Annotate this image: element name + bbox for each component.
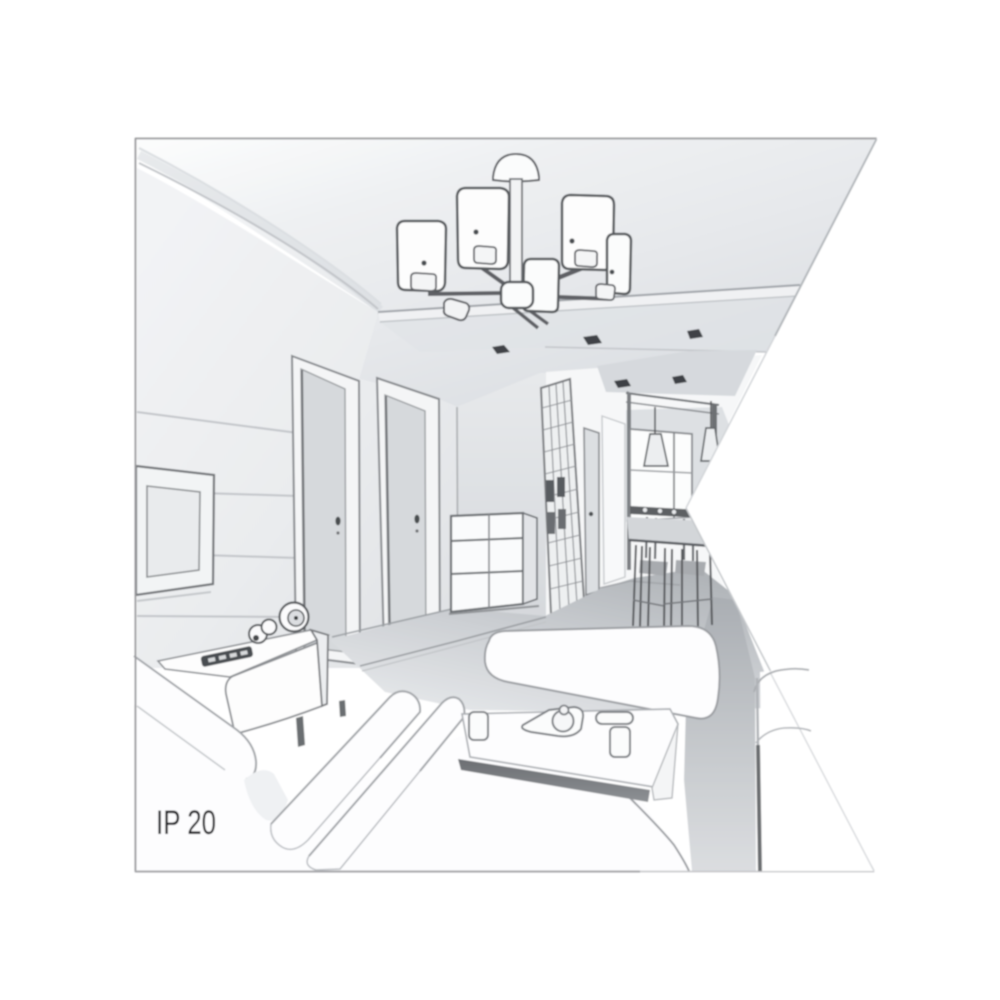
svg-text:IP 20: IP 20 bbox=[156, 804, 216, 842]
